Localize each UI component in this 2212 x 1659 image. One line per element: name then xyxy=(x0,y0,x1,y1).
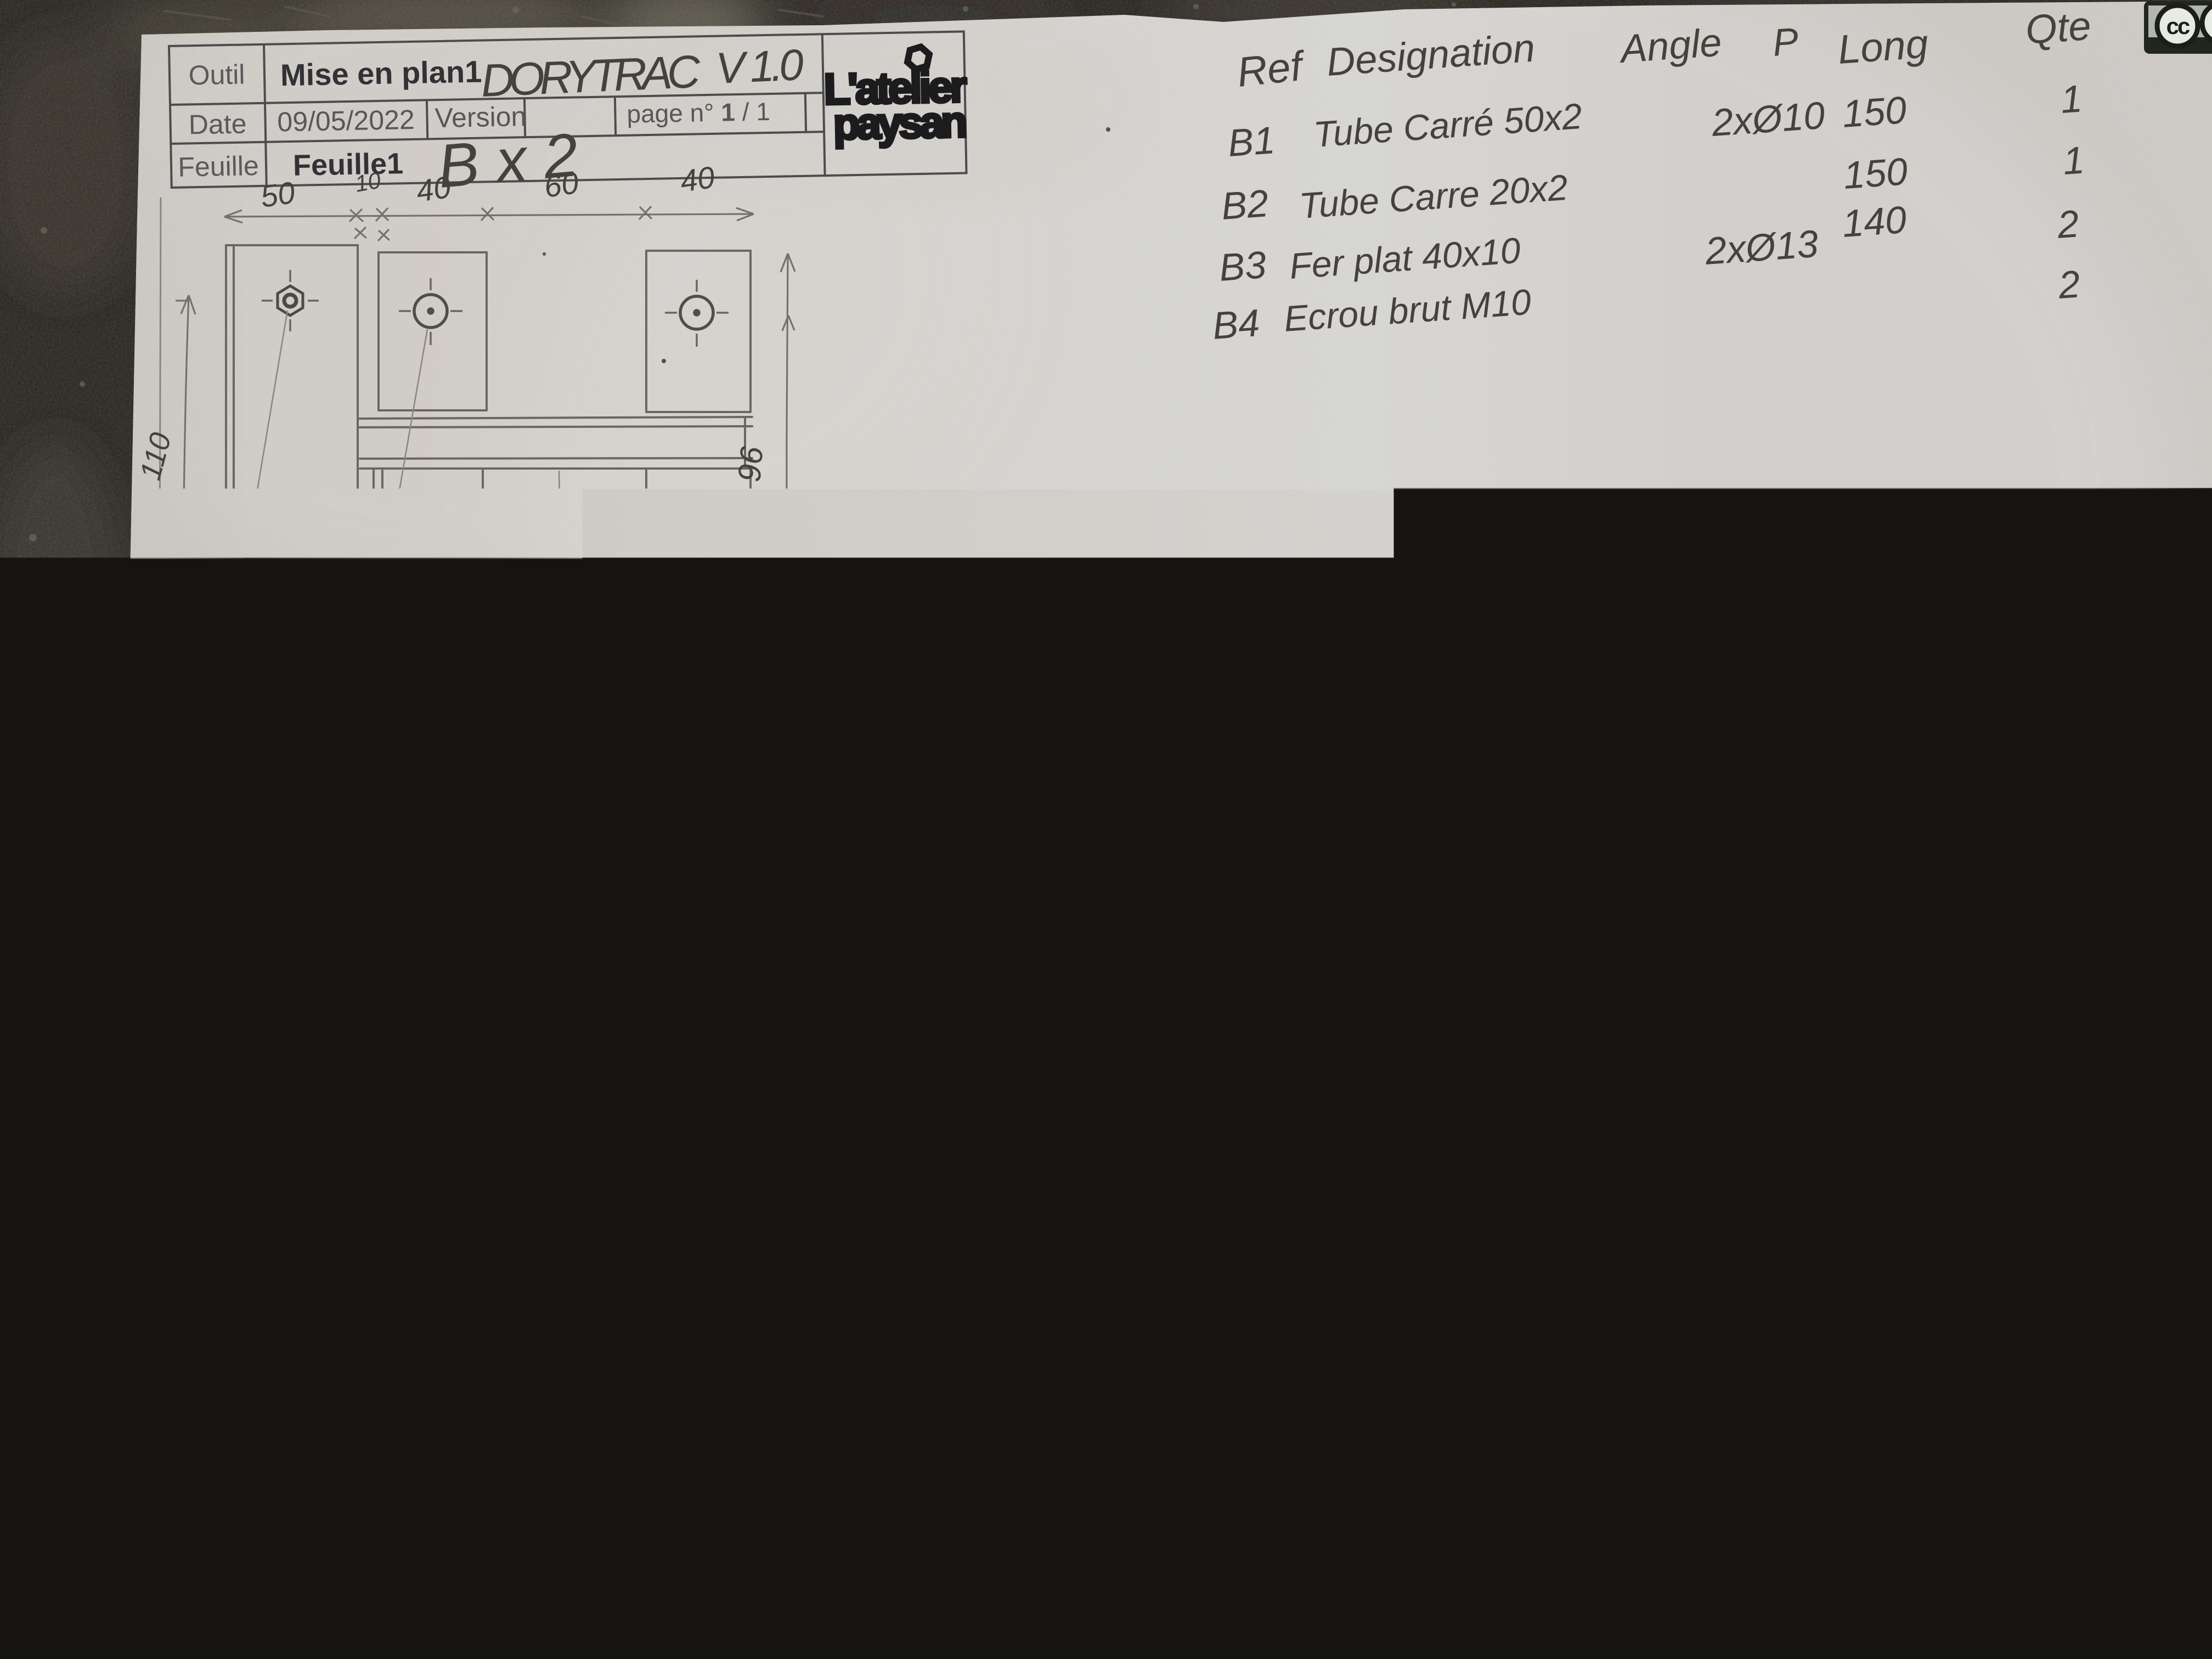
svg-text:2: 2 xyxy=(703,815,723,855)
svg-text:2: 2 xyxy=(486,932,505,970)
svg-text:Angle: Angle xyxy=(1617,20,1723,71)
svg-text:150: 150 xyxy=(1841,88,1908,136)
svg-text:B2: B2 xyxy=(537,731,585,775)
svg-text:140: 140 xyxy=(1841,198,1908,245)
svg-text:B3: B3 xyxy=(1218,243,1268,289)
svg-text:2: 2 xyxy=(2056,202,2080,246)
svg-text:Feuille1: Feuille1 xyxy=(293,147,404,182)
svg-text:page n° 1 / 1: page n° 1 / 1 xyxy=(627,97,770,128)
svg-text:cc: cc xyxy=(2166,13,2190,39)
svg-text:Ref: Ref xyxy=(1235,42,1308,96)
svg-text:09/05/2022: 09/05/2022 xyxy=(277,104,415,138)
svg-text:B3: B3 xyxy=(675,763,723,806)
svg-text:1: 1 xyxy=(563,781,582,819)
svg-text:B1: B1 xyxy=(343,797,392,840)
svg-text:150: 150 xyxy=(1842,150,1909,197)
svg-text:V 1.0: V 1.0 xyxy=(715,40,805,93)
svg-text:B4: B4 xyxy=(1211,301,1261,347)
svg-text:B2: B2 xyxy=(1220,182,1270,228)
svg-text:1: 1 xyxy=(2062,138,2086,183)
svg-text:Mise en plan1: Mise en plan1 xyxy=(280,54,482,93)
svg-text:DORYTRAC: DORYTRAC xyxy=(480,46,702,106)
svg-text:40: 40 xyxy=(678,160,716,199)
svg-text:Qte: Qte xyxy=(2024,3,2092,53)
svg-text:1: 1 xyxy=(2059,77,2084,121)
svg-text:Feuille: Feuille xyxy=(178,150,259,183)
svg-text:B4: B4 xyxy=(460,878,509,922)
svg-text:60: 60 xyxy=(542,165,580,204)
svg-text:50: 50 xyxy=(258,175,297,214)
svg-text:2: 2 xyxy=(2057,262,2081,307)
svg-text:2xØ10: 2xØ10 xyxy=(1710,94,1826,144)
svg-text:P: P xyxy=(1771,20,1800,64)
svg-text:paysan: paysan xyxy=(833,97,966,148)
svg-text:Date: Date xyxy=(188,108,247,140)
svg-text:Outil: Outil xyxy=(188,59,245,91)
svg-text:10: 10 xyxy=(353,167,383,197)
svg-text:B1: B1 xyxy=(1227,119,1277,165)
svg-text:1: 1 xyxy=(373,847,391,884)
svg-text:Long: Long xyxy=(1836,21,1929,72)
svg-text:2xØ13: 2xØ13 xyxy=(1703,222,1820,273)
svg-text:96: 96 xyxy=(731,444,770,483)
svg-text:40: 40 xyxy=(414,170,453,208)
